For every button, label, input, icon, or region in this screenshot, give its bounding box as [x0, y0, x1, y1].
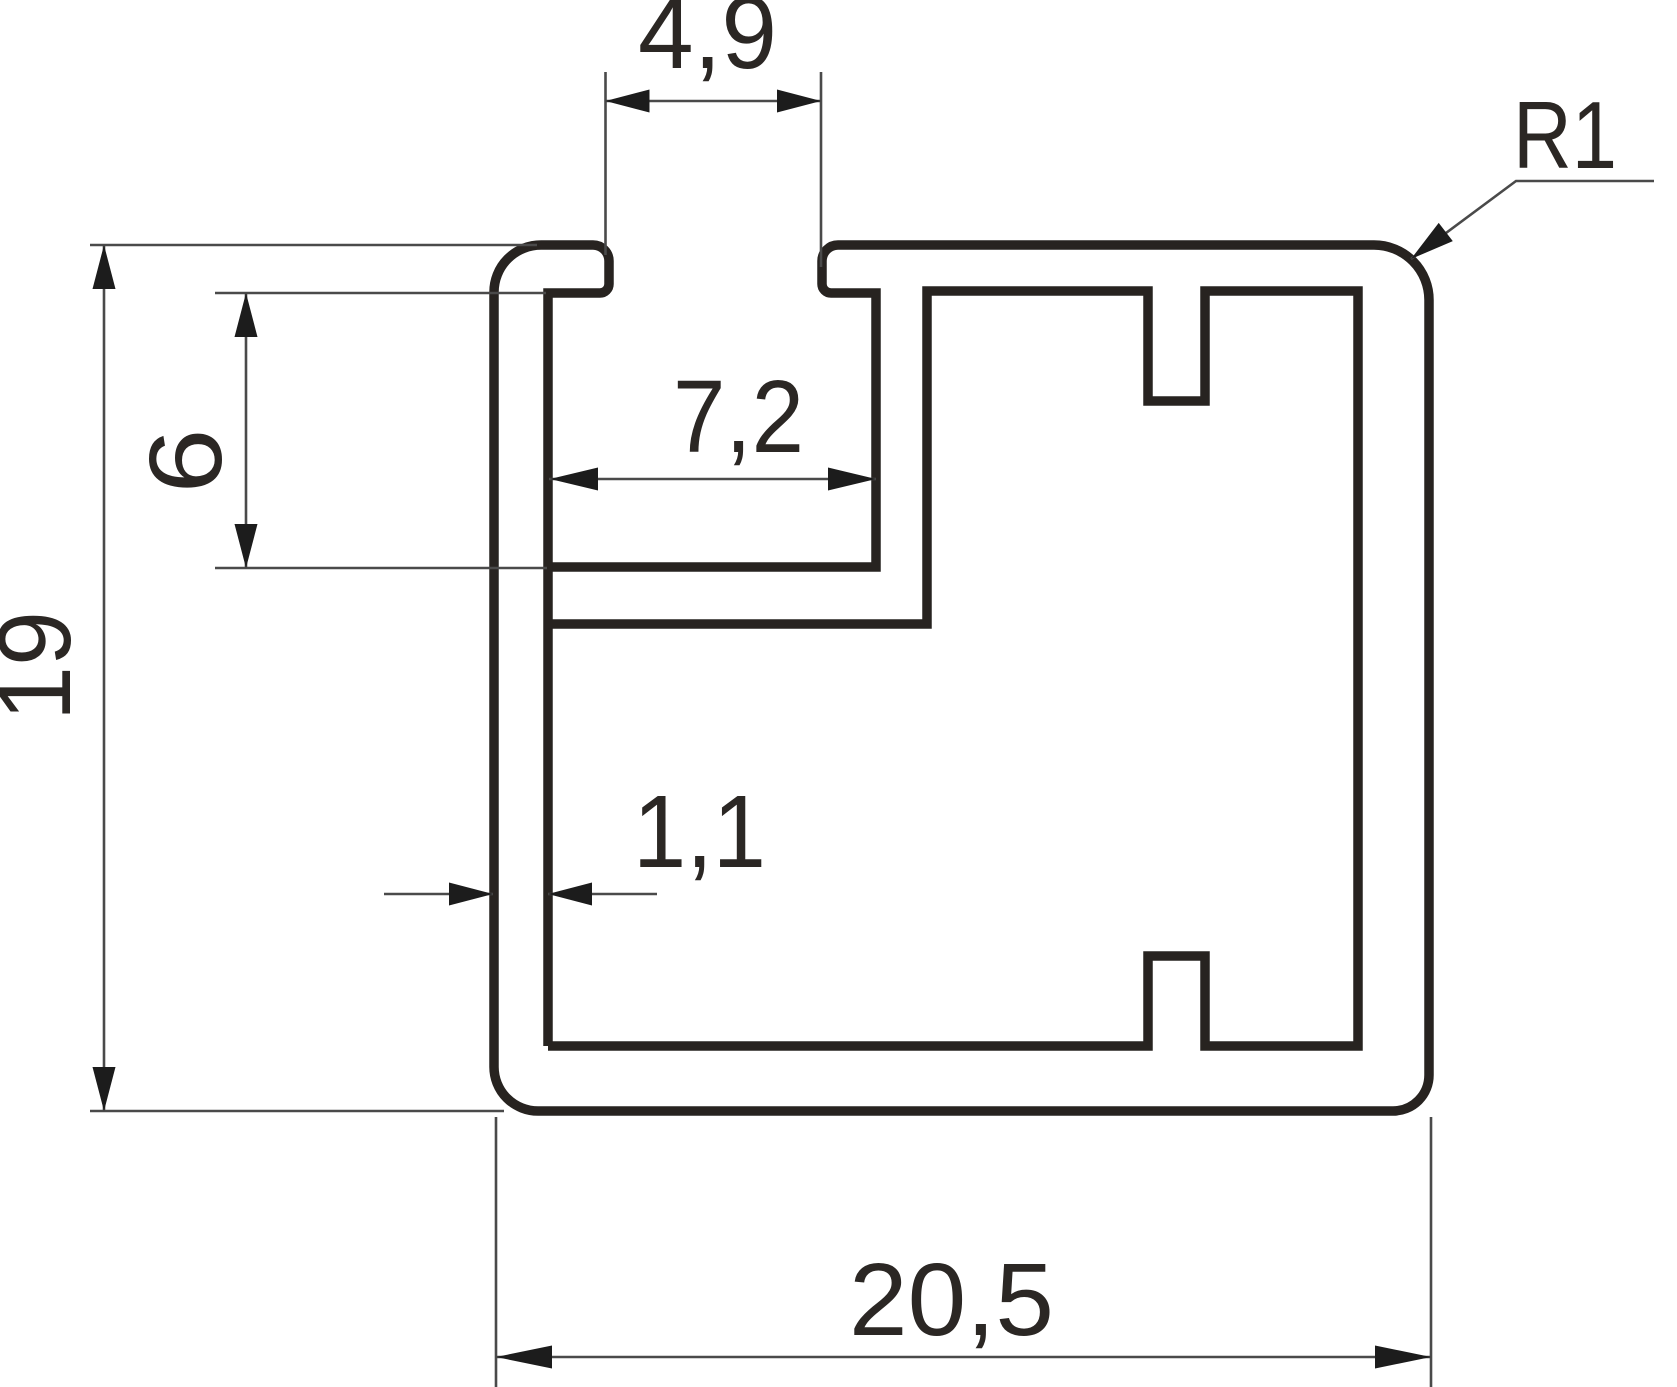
svg-text:7,2: 7,2 — [673, 359, 804, 474]
svg-text:19: 19 — [0, 611, 92, 721]
svg-text:6: 6 — [128, 429, 243, 494]
svg-text:4,9: 4,9 — [638, 0, 777, 90]
svg-text:R1: R1 — [1513, 82, 1617, 189]
svg-text:20,5: 20,5 — [849, 1242, 1054, 1357]
svg-text:1,1: 1,1 — [633, 774, 766, 889]
